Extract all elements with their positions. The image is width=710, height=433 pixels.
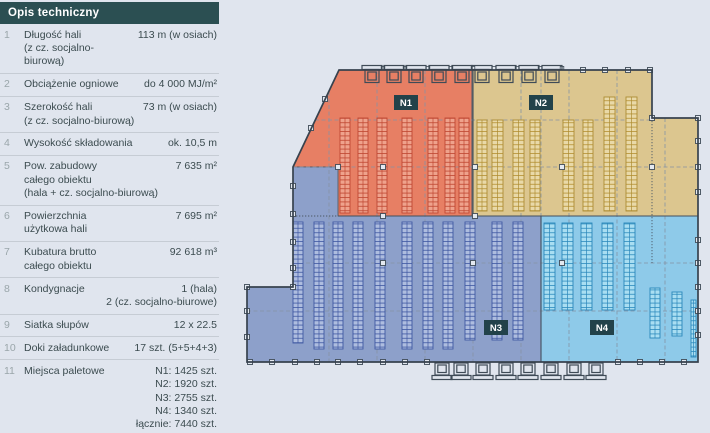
row-value: N1: 1425 szt. N2: 1920 szt. N3: 2755 szt…: [109, 365, 219, 432]
row-value: 7 695 m²: [91, 210, 219, 223]
spec-row-7: 7 Kubatura brutto całego obiektu 92 618 …: [0, 242, 219, 278]
row-label: Obciążenie ogniowe: [24, 78, 123, 91]
spec-row-11: 11 Miejsca paletowe N1: 1425 szt. N2: 19…: [0, 360, 219, 433]
row-value: 12 x 22.5: [93, 319, 219, 332]
row-number: 11: [0, 365, 24, 378]
spec-row-4: 4 Wysokość składowania ok. 10,5 m: [0, 133, 219, 156]
svg-text:N1: N1: [400, 98, 413, 109]
loading-dock-icon: [496, 363, 516, 380]
svg-text:N4: N4: [596, 323, 609, 334]
row-label: Doki załadunkowe: [24, 342, 113, 355]
spec-row-9: 9 Siatka słupów 12 x 22.5: [0, 315, 219, 338]
row-number: 2: [0, 78, 24, 91]
row-number: 1: [0, 29, 24, 42]
row-value: 73 m (w osiach): [138, 101, 219, 114]
spec-row-6: 6 Powierzchnia użytkowa hali 7 695 m²: [0, 206, 219, 242]
row-label: Szerokość hali (z cz. socjalno-biurową): [24, 101, 138, 128]
spec-row-2: 2 Obciążenie ogniowe do 4 000 MJ/m²: [0, 74, 219, 97]
loading-dock-icon: [473, 363, 493, 380]
loading-dock-icon: [432, 363, 452, 380]
zone-n4-label: N4: [590, 320, 614, 335]
loading-dock-icon: [518, 363, 538, 380]
row-label: Powierzchnia użytkowa hali: [24, 210, 91, 237]
row-number: 7: [0, 246, 24, 259]
row-number: 4: [0, 137, 24, 150]
row-number: 8: [0, 283, 24, 296]
row-label: Pow. zabudowy całego obiektu (hala + cz.…: [24, 160, 162, 200]
floor-plan-drawing: N1 N2 N3 N4: [230, 0, 710, 433]
spec-row-3: 3 Szerokość hali (z cz. socjalno-biurową…: [0, 97, 219, 133]
loading-dock-icon: [564, 363, 584, 380]
floor-plan: N1 N2 N3 N4: [230, 0, 710, 433]
row-value: 7 635 m²: [162, 160, 219, 173]
spec-row-5: 5 Pow. zabudowy całego obiektu (hala + c…: [0, 156, 219, 206]
row-label: Kubatura brutto całego obiektu: [24, 246, 100, 273]
loading-dock-icon: [586, 363, 606, 380]
row-label: Kondygnacje: [24, 283, 89, 296]
row-number: 6: [0, 210, 24, 223]
row-value: 92 618 m³: [100, 246, 219, 259]
zone-n3-label: N3: [484, 320, 508, 335]
page: Opis techniczny 1 Długość hali (z cz. so…: [0, 0, 710, 433]
row-label: Wysokość składowania: [24, 137, 136, 150]
row-value: ok. 10,5 m: [136, 137, 219, 150]
row-value: 17 szt. (5+5+4+3): [113, 342, 219, 355]
row-value: 1 (hala) 2 (cz. socjalno-biurowe): [89, 283, 219, 310]
zone-n2-label: N2: [529, 95, 553, 110]
svg-text:N2: N2: [535, 98, 547, 109]
row-number: 3: [0, 101, 24, 114]
row-number: 5: [0, 160, 24, 173]
row-value: 113 m (w osiach): [98, 29, 219, 42]
loading-dock-icon: [451, 363, 471, 380]
svg-text:N3: N3: [490, 323, 502, 334]
row-label: Miejsca paletowe: [24, 365, 109, 378]
spec-row-10: 10 Doki załadunkowe 17 szt. (5+5+4+3): [0, 337, 219, 360]
panel-title: Opis techniczny: [0, 2, 219, 24]
row-label: Długość hali (z cz. socjalno- biurową): [24, 29, 98, 69]
spec-row-8: 8 Kondygnacje 1 (hala) 2 (cz. socjalno-b…: [0, 278, 219, 314]
spec-panel: Opis techniczny 1 Długość hali (z cz. so…: [0, 0, 219, 433]
spec-rows: 1 Długość hali (z cz. socjalno- biurową)…: [0, 24, 219, 433]
row-number: 10: [0, 342, 24, 355]
row-label: Siatka słupów: [24, 319, 93, 332]
row-value: do 4 000 MJ/m²: [123, 78, 219, 91]
spec-row-1: 1 Długość hali (z cz. socjalno- biurową)…: [0, 24, 219, 74]
loading-dock-icon: [541, 363, 561, 380]
row-number: 9: [0, 319, 24, 332]
zone-n1-label: N1: [394, 95, 418, 110]
